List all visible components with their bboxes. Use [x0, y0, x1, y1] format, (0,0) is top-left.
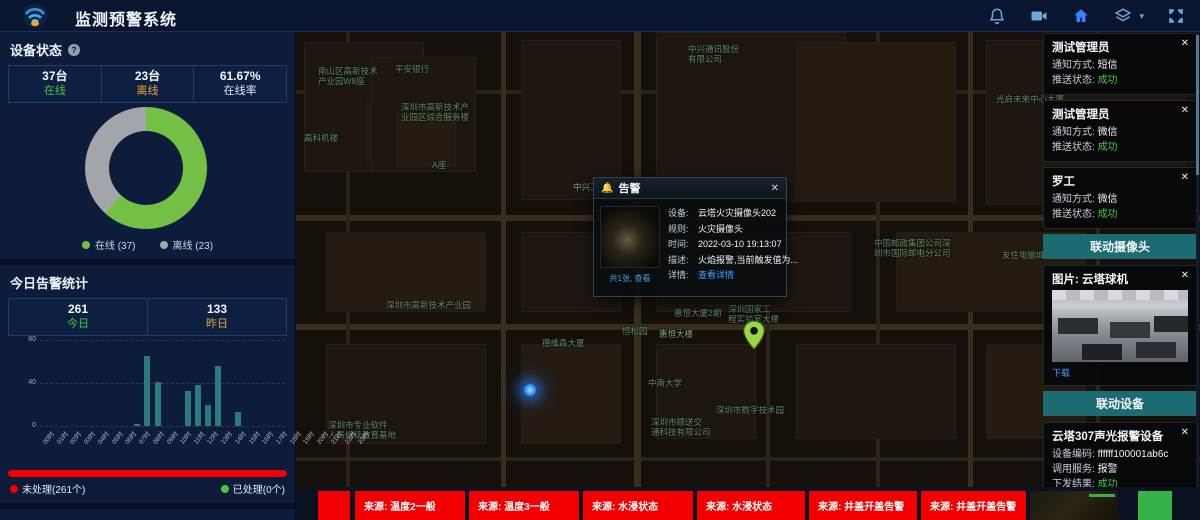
notification-card-1-title: 测试管理员	[1052, 106, 1188, 122]
alert-tile-2[interactable]: 来源: 水浸状态	[583, 491, 693, 520]
unhandled-progress-fill	[8, 470, 287, 477]
popup-field-value: 2022-03-10 19:13:07	[698, 237, 782, 253]
alarm-bell-icon: 🔔	[601, 183, 613, 194]
donut-legend: 在线 (37)离线 (23)	[0, 237, 295, 252]
alarm-popup: 🔔 告警 ✕ 共1张, 查看 设备:云塔火灾摄像头202规则:火灾摄像头时间:2…	[593, 177, 787, 297]
today-alarms-title: 今日告警统计	[0, 265, 295, 296]
map-label-0: 南山区高新技术 产业园W8座	[318, 66, 378, 86]
device-stat-2: 61.67%在线率	[194, 66, 286, 102]
device-location-marker[interactable]	[524, 384, 536, 396]
alarm-location-pin[interactable]	[741, 320, 767, 350]
scrollbar-thumb[interactable]	[1196, 35, 1199, 175]
bar-17时	[215, 366, 221, 426]
fullscreen-icon[interactable]	[1166, 6, 1186, 26]
alert-tile-4[interactable]: 来源: 井盖开盖告警	[809, 491, 917, 520]
map-label-4: A座	[432, 160, 446, 170]
alarm-popup-body: 共1张, 查看 设备:云塔火灾摄像头202规则:火灾摄像头时间:2022-03-…	[594, 199, 786, 284]
map-label-18: 深圳市高新技术产业园	[386, 300, 471, 310]
popup-field-4: 详情:查看详情	[668, 268, 798, 284]
device-status-title: 设备状态 ?	[0, 32, 295, 63]
notification-card-1: 测试管理员✕通知方式: 微信推送状态: 成功	[1043, 100, 1197, 162]
card-row: 推送状态: 成功	[1052, 73, 1188, 88]
close-icon[interactable]: ✕	[1181, 38, 1189, 49]
chevron-down-icon: ▾	[1139, 11, 1144, 22]
right-panel: 测试管理员✕通知方式: 短信推送状态: 成功测试管理员✕通知方式: 微信推送状态…	[1043, 33, 1197, 487]
legend-item-0: 在线 (37)	[82, 237, 136, 252]
close-icon[interactable]: ✕	[1181, 105, 1189, 116]
linked-device-header[interactable]: 联动设备	[1043, 391, 1197, 416]
device-card-0-title: 云塔307声光报警设备	[1052, 428, 1188, 444]
left-panel: 设备状态 ? 37台在线23台离线61.67%在线率 在线 (37)离线 (23…	[0, 32, 296, 520]
x-axis-labels: 00时01时02时03时04时05时06时07时08时09时10时11时12时1…	[42, 428, 283, 438]
header-icons: ▾	[987, 0, 1186, 32]
alert-tile-5[interactable]: 来源: 井盖开盖告警	[921, 491, 1026, 520]
help-icon[interactable]: ?	[68, 44, 80, 56]
map-label-2: 深圳市高新技术产 业园区综合服务楼	[401, 102, 469, 122]
bars	[42, 340, 283, 426]
popup-field-value: 火灾摄像头	[698, 222, 743, 238]
month-alarms-title: 本月告警统计	[0, 509, 295, 520]
bell-icon[interactable]	[987, 6, 1007, 26]
snapshot-caption-link[interactable]: 共1张, 查看	[600, 273, 660, 284]
map-label-15: 中南大学	[648, 378, 682, 388]
camera-snapshot-image[interactable]	[1052, 290, 1188, 362]
notification-card-2-title: 罗工	[1052, 173, 1188, 189]
legend-item-1: 离线 (23)	[160, 237, 214, 252]
camera-card-title: 图片: 云塔球机	[1052, 271, 1188, 287]
alarm-progress-bar	[8, 470, 287, 477]
bar-11时	[155, 382, 161, 426]
y-tick: 0	[16, 422, 36, 429]
y-tick: 40	[16, 379, 36, 386]
card-row: 调用服务: 报警	[1052, 462, 1188, 477]
alarm-popup-title: 告警	[618, 180, 765, 196]
bar-14时	[185, 391, 191, 426]
popup-field-0: 设备:云塔火灾摄像头202	[668, 206, 798, 222]
device-stat-1: 23台离线	[102, 66, 195, 102]
view-details-link[interactable]: 查看详情	[698, 268, 734, 284]
alarm-popup-header: 🔔 告警 ✕	[594, 178, 786, 199]
map-label-17: 深圳市顺送交 通科技有限公司	[651, 417, 711, 437]
video-thumbnail-tile[interactable]	[1030, 491, 1118, 520]
map-label-10: 德维森大厦	[542, 338, 585, 348]
bar-15时	[195, 385, 201, 426]
bar-10时	[144, 356, 150, 426]
alarm-snapshot-image[interactable]	[600, 206, 660, 268]
alert-tile-partial[interactable]	[318, 491, 350, 520]
video-camera-icon[interactable]	[1029, 6, 1049, 26]
notification-list: 测试管理员✕通知方式: 短信推送状态: 成功测试管理员✕通知方式: 微信推送状态…	[1043, 33, 1197, 229]
popup-field-value: 火焰报警,当前触发值为...	[698, 253, 798, 269]
today-stat-0: 261今日	[9, 299, 148, 335]
sidebar-scrollbar[interactable]	[1196, 33, 1199, 487]
map-label-12: 惠恒大楼	[659, 329, 693, 339]
popup-field-1: 规则:火灾摄像头	[668, 222, 798, 238]
notification-card-2: 罗工✕通知方式: 微信推送状态: 成功	[1043, 167, 1197, 229]
today-stat-1: 133昨日	[148, 299, 286, 335]
bar-16时	[205, 405, 211, 427]
card-row: 推送状态: 成功	[1052, 140, 1188, 155]
notification-card-0-title: 测试管理员	[1052, 39, 1188, 55]
app-header: 监测预警系统 ▾	[0, 0, 1200, 32]
alarm-fields: 设备:云塔火灾摄像头202规则:火灾摄像头时间:2022-03-10 19:13…	[660, 206, 798, 284]
bottom-alert-bar: 来源: 温度2一般来源: 温度3一般来源: 水浸状态来源: 水浸状态来源: 井盖…	[296, 487, 1200, 520]
close-icon[interactable]: ✕	[1181, 270, 1189, 281]
today-alarms-stats: 261今日133昨日	[8, 298, 287, 336]
popup-field-3: 描述:火焰报警,当前触发值为...	[668, 253, 798, 269]
map-label-1: 平安银行	[395, 64, 429, 74]
device-stat-0: 37台在线	[9, 66, 102, 102]
map-label-9: 友住电脑城	[1002, 250, 1045, 260]
card-row: 通知方式: 微信	[1052, 125, 1188, 140]
popup-field-2: 时间:2022-03-10 19:13:07	[668, 237, 798, 253]
bar-19时	[235, 412, 241, 426]
map-label-13: 惠恒大厦2期	[674, 308, 721, 318]
app-logo-icon	[22, 3, 48, 29]
hourly-alarm-bar-chart: 8040000时01时02时03时04时05时06时07时08时09时10时11…	[8, 340, 287, 462]
green-dot-icon	[221, 485, 229, 493]
unhandled-legend: 未处理(261个)	[10, 481, 85, 496]
progress-legend: 未处理(261个) 已处理(0个)	[10, 481, 285, 496]
y-tick: 80	[16, 336, 36, 343]
alert-tile-0[interactable]: 来源: 温度2一般	[355, 491, 465, 520]
map-label-11: 恒松园	[622, 326, 648, 336]
popup-field-value: 云塔火灾摄像头202	[698, 206, 776, 222]
red-dot-icon	[10, 485, 18, 493]
handled-legend: 已处理(0个)	[221, 481, 285, 496]
dashboard: 监测预警系统 ▾ 设备状态 ? 37台在线23台离线61.67%在	[0, 0, 1200, 520]
layers-icon[interactable]	[1113, 6, 1133, 26]
notification-card-0: 测试管理员✕通知方式: 短信推送状态: 成功	[1043, 33, 1197, 95]
card-row: 推送状态: 成功	[1052, 207, 1188, 222]
popup-close-icon[interactable]: ✕	[771, 183, 779, 194]
home-icon[interactable]	[1071, 6, 1091, 26]
alert-tile-1[interactable]: 来源: 温度3一般	[469, 491, 579, 520]
close-icon[interactable]: ✕	[1181, 427, 1189, 438]
device-status-donut-chart	[0, 107, 295, 229]
card-row: 通知方式: 微信	[1052, 192, 1188, 207]
page-title: 监测预警系统	[75, 6, 177, 30]
close-icon[interactable]: ✕	[1181, 172, 1189, 183]
download-link[interactable]: 下载	[1052, 366, 1188, 379]
map-label-5: 中兴通讯股份 有限公司	[688, 44, 739, 64]
device-status-stats: 37台在线23台离线61.67%在线率	[8, 65, 287, 103]
map-label-16: 深圳市数字技术园	[716, 405, 784, 415]
green-video-tile[interactable]	[1138, 491, 1172, 520]
donut-chart	[85, 107, 207, 229]
alert-tile-3[interactable]: 来源: 水浸状态	[697, 491, 805, 520]
card-row: 通知方式: 短信	[1052, 58, 1188, 73]
map-label-3: 高科机楼	[304, 133, 338, 143]
linked-camera-header[interactable]: 联动摄像头	[1043, 234, 1197, 259]
map-label-8: 中国邮政集团公司深 圳市国际邮电分公司	[874, 238, 951, 258]
bar-09时	[134, 424, 140, 426]
card-row: 设备编码: ffffff100001ab6c	[1052, 447, 1188, 462]
camera-card: 图片: 云塔球机 ✕ 下载	[1043, 265, 1197, 386]
